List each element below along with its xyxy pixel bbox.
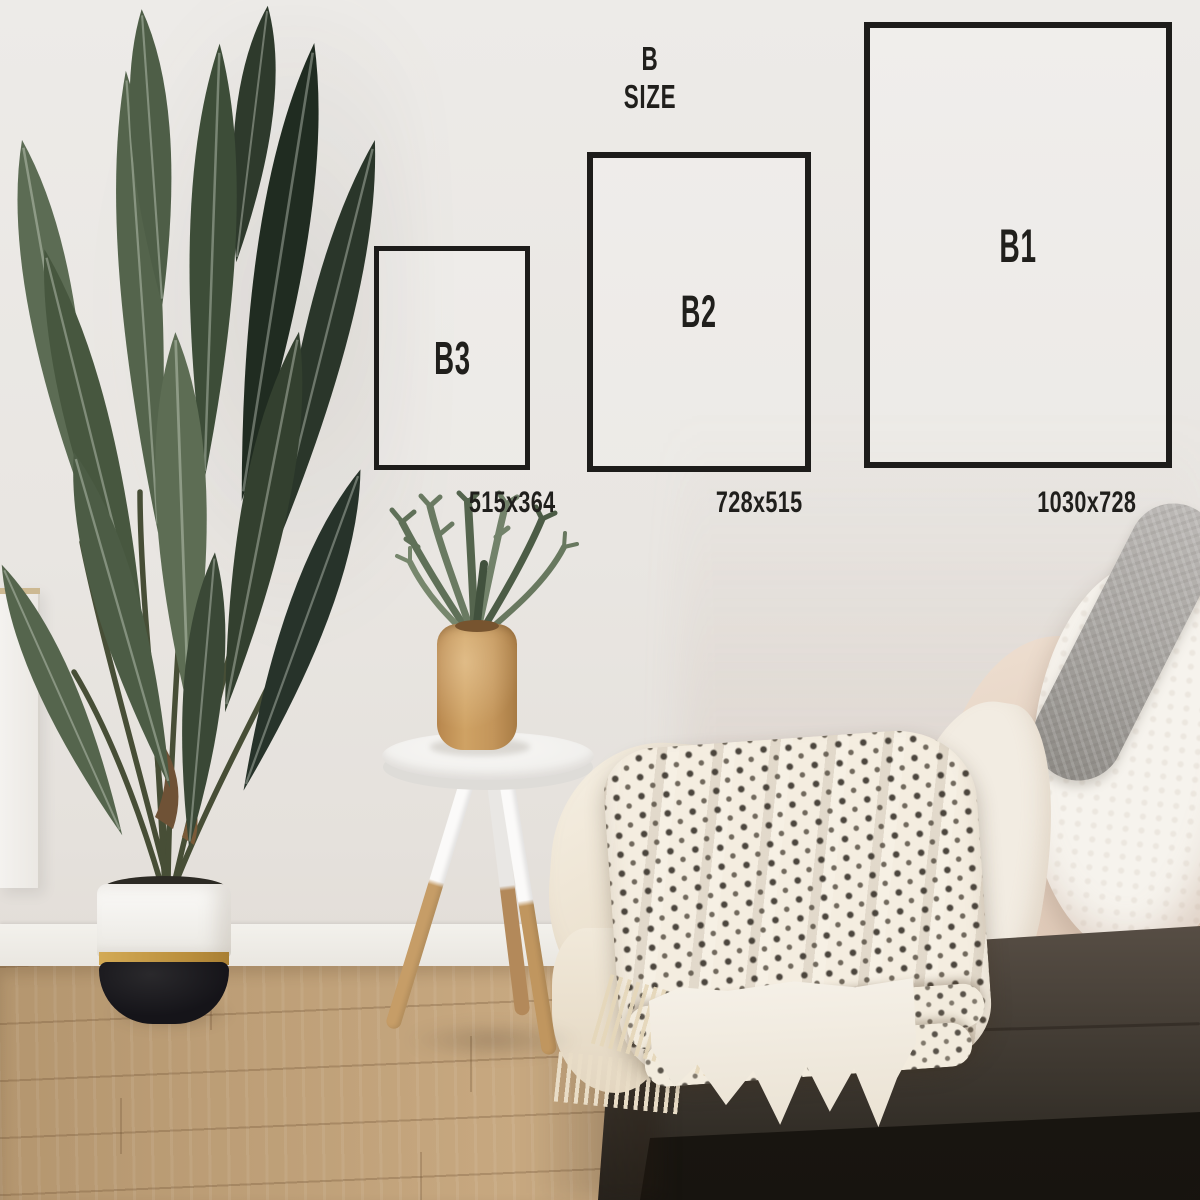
size-caption-b2-text: 728x515 (716, 486, 803, 520)
size-frame-b1: B1 (864, 22, 1172, 468)
size-frame-b1-label: B1 (999, 218, 1036, 273)
room-photo-scene: B SIZE B3 B2 B1 515x364 728x515 1030x728 (0, 0, 1200, 1200)
size-frame-b3-label: B3 (434, 331, 470, 385)
size-frame-b2-label: B2 (681, 286, 717, 338)
planter-pot-white-band (97, 884, 231, 958)
wooden-vase (437, 624, 517, 750)
diagram-title-text: B SIZE (616, 40, 684, 116)
vase-opening (455, 620, 499, 632)
floor-plank-joint (420, 1152, 422, 1200)
size-caption-b3-text: 515x364 (469, 486, 556, 520)
floor-plank-joint (120, 1098, 122, 1154)
size-frame-b2: B2 (587, 152, 811, 472)
size-frame-b3: B3 (374, 246, 530, 470)
table-shadow (368, 1014, 618, 1066)
size-caption-b1-text: 1030x728 (1037, 486, 1136, 520)
